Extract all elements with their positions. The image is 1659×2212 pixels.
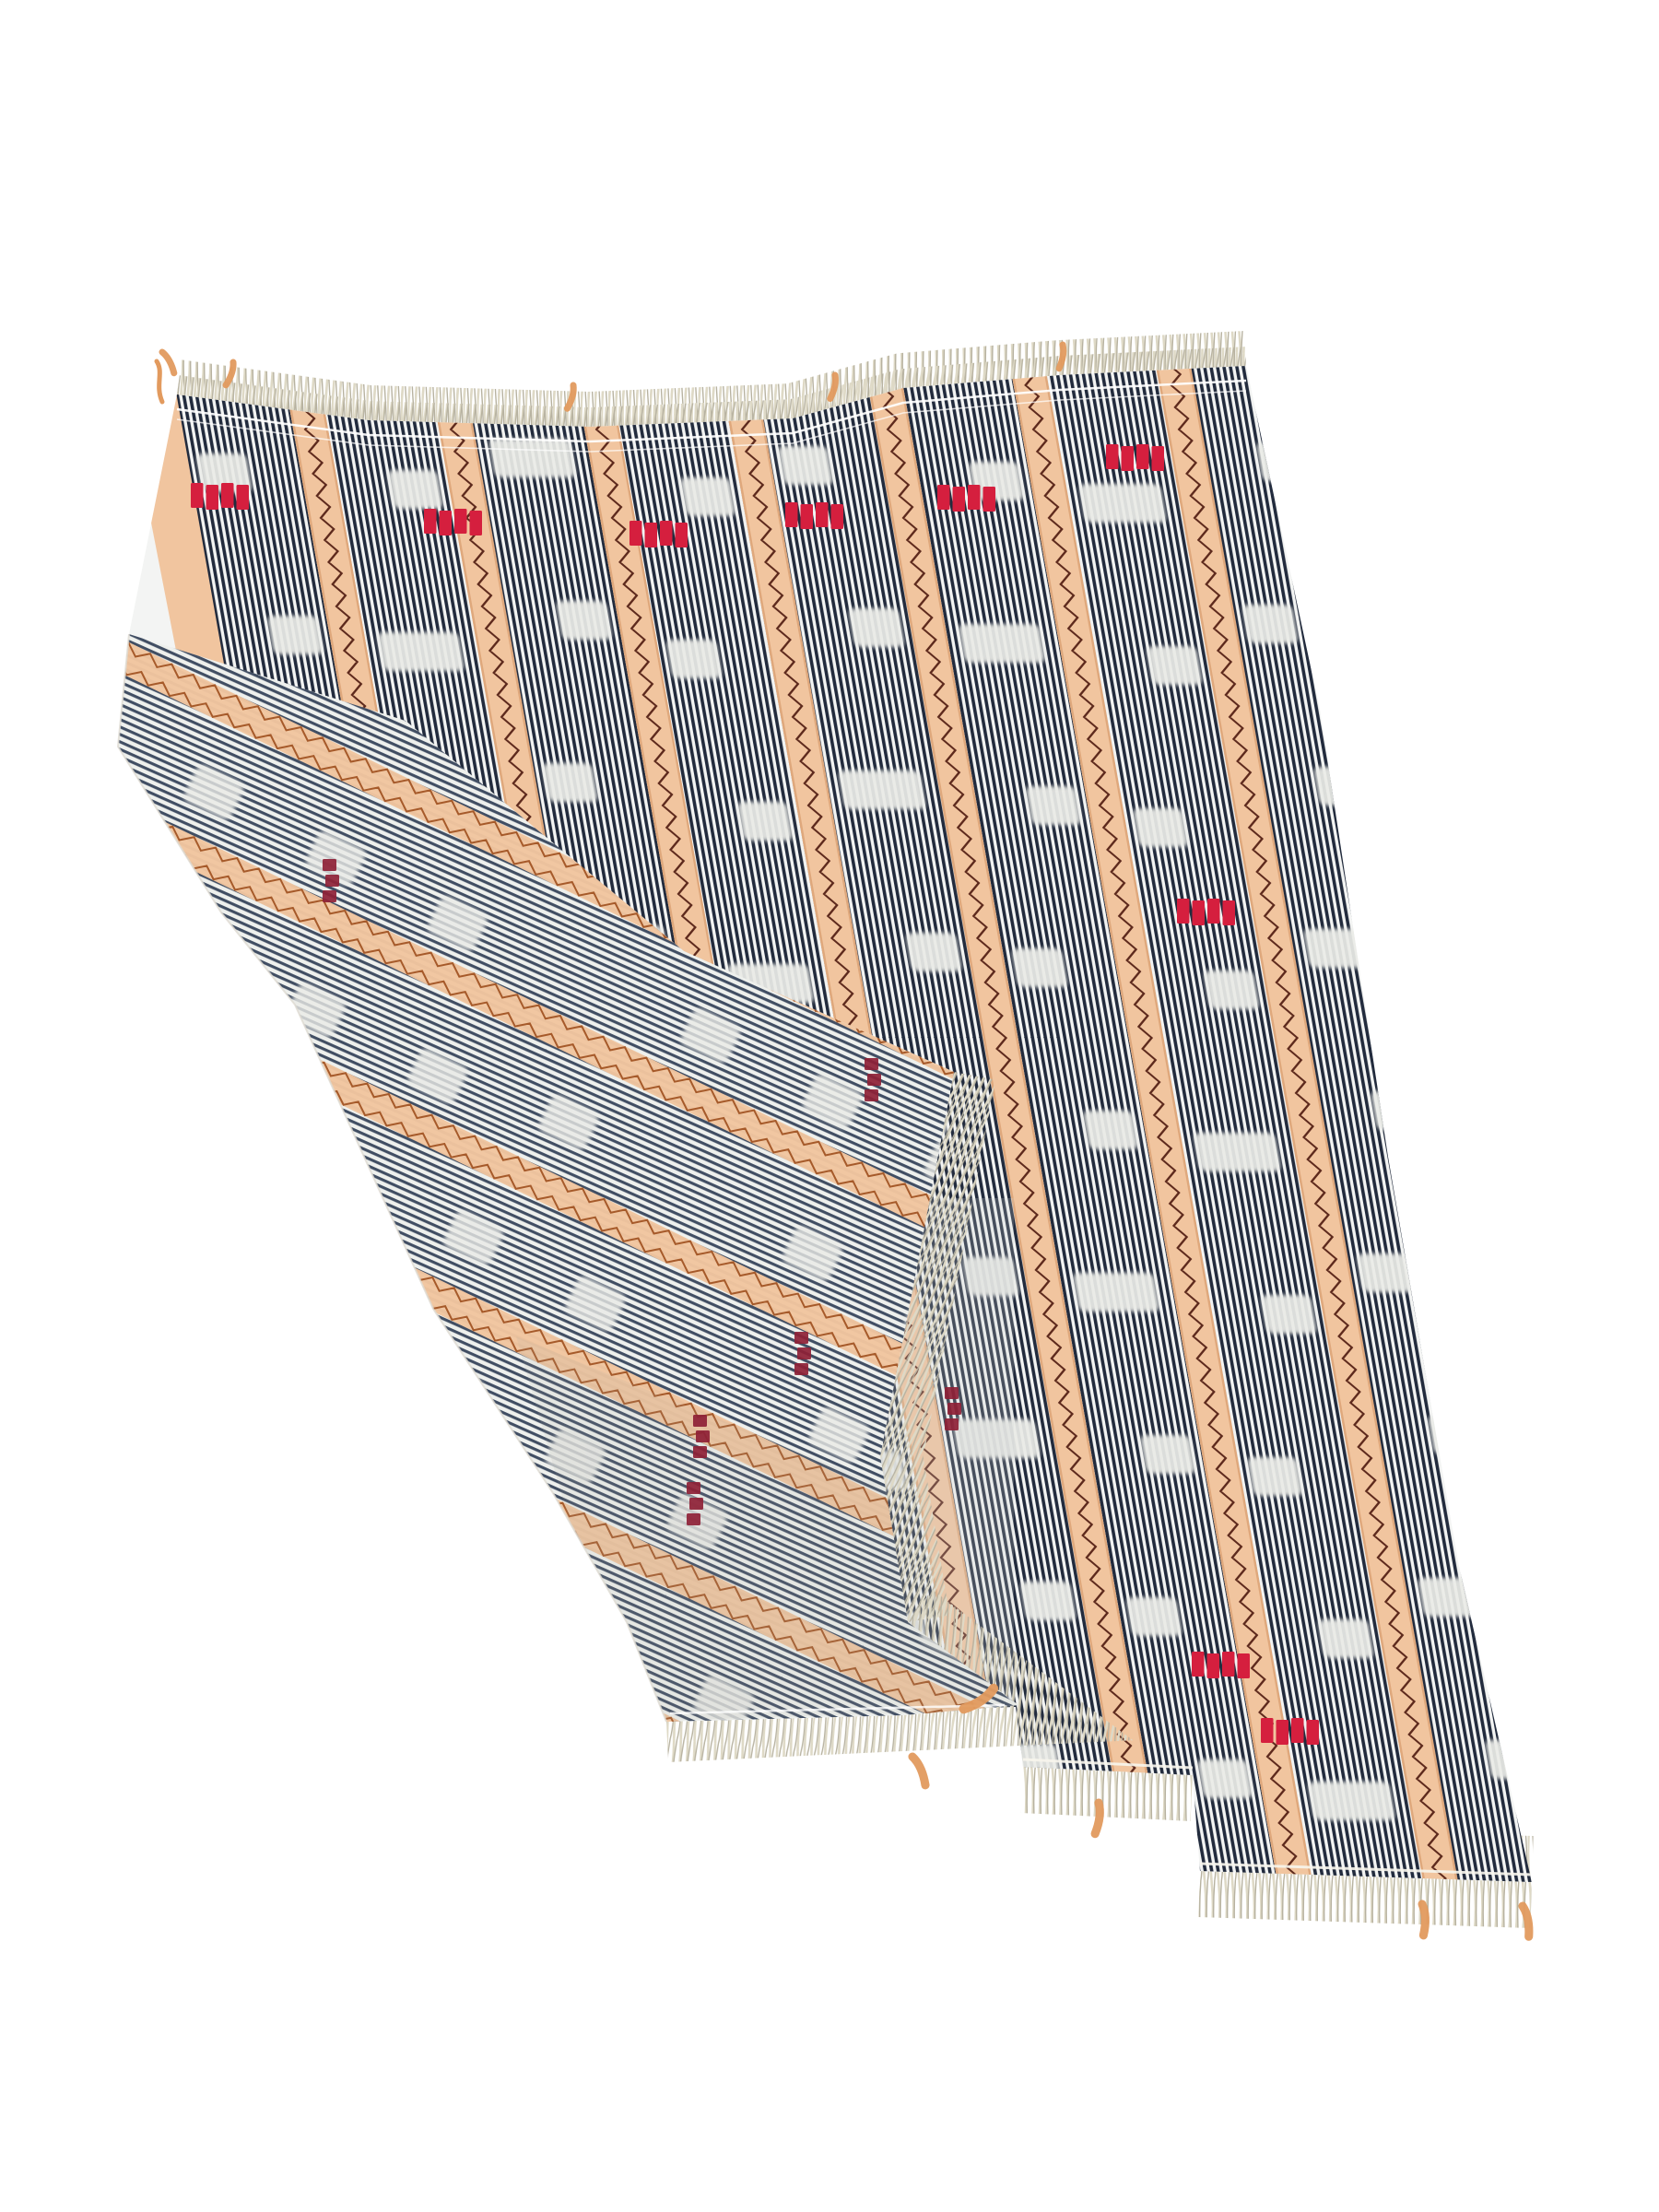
textile-photo	[0, 0, 1659, 2212]
cloth-illustration	[0, 0, 1659, 2212]
baule-cloth-svg	[0, 0, 1659, 2212]
